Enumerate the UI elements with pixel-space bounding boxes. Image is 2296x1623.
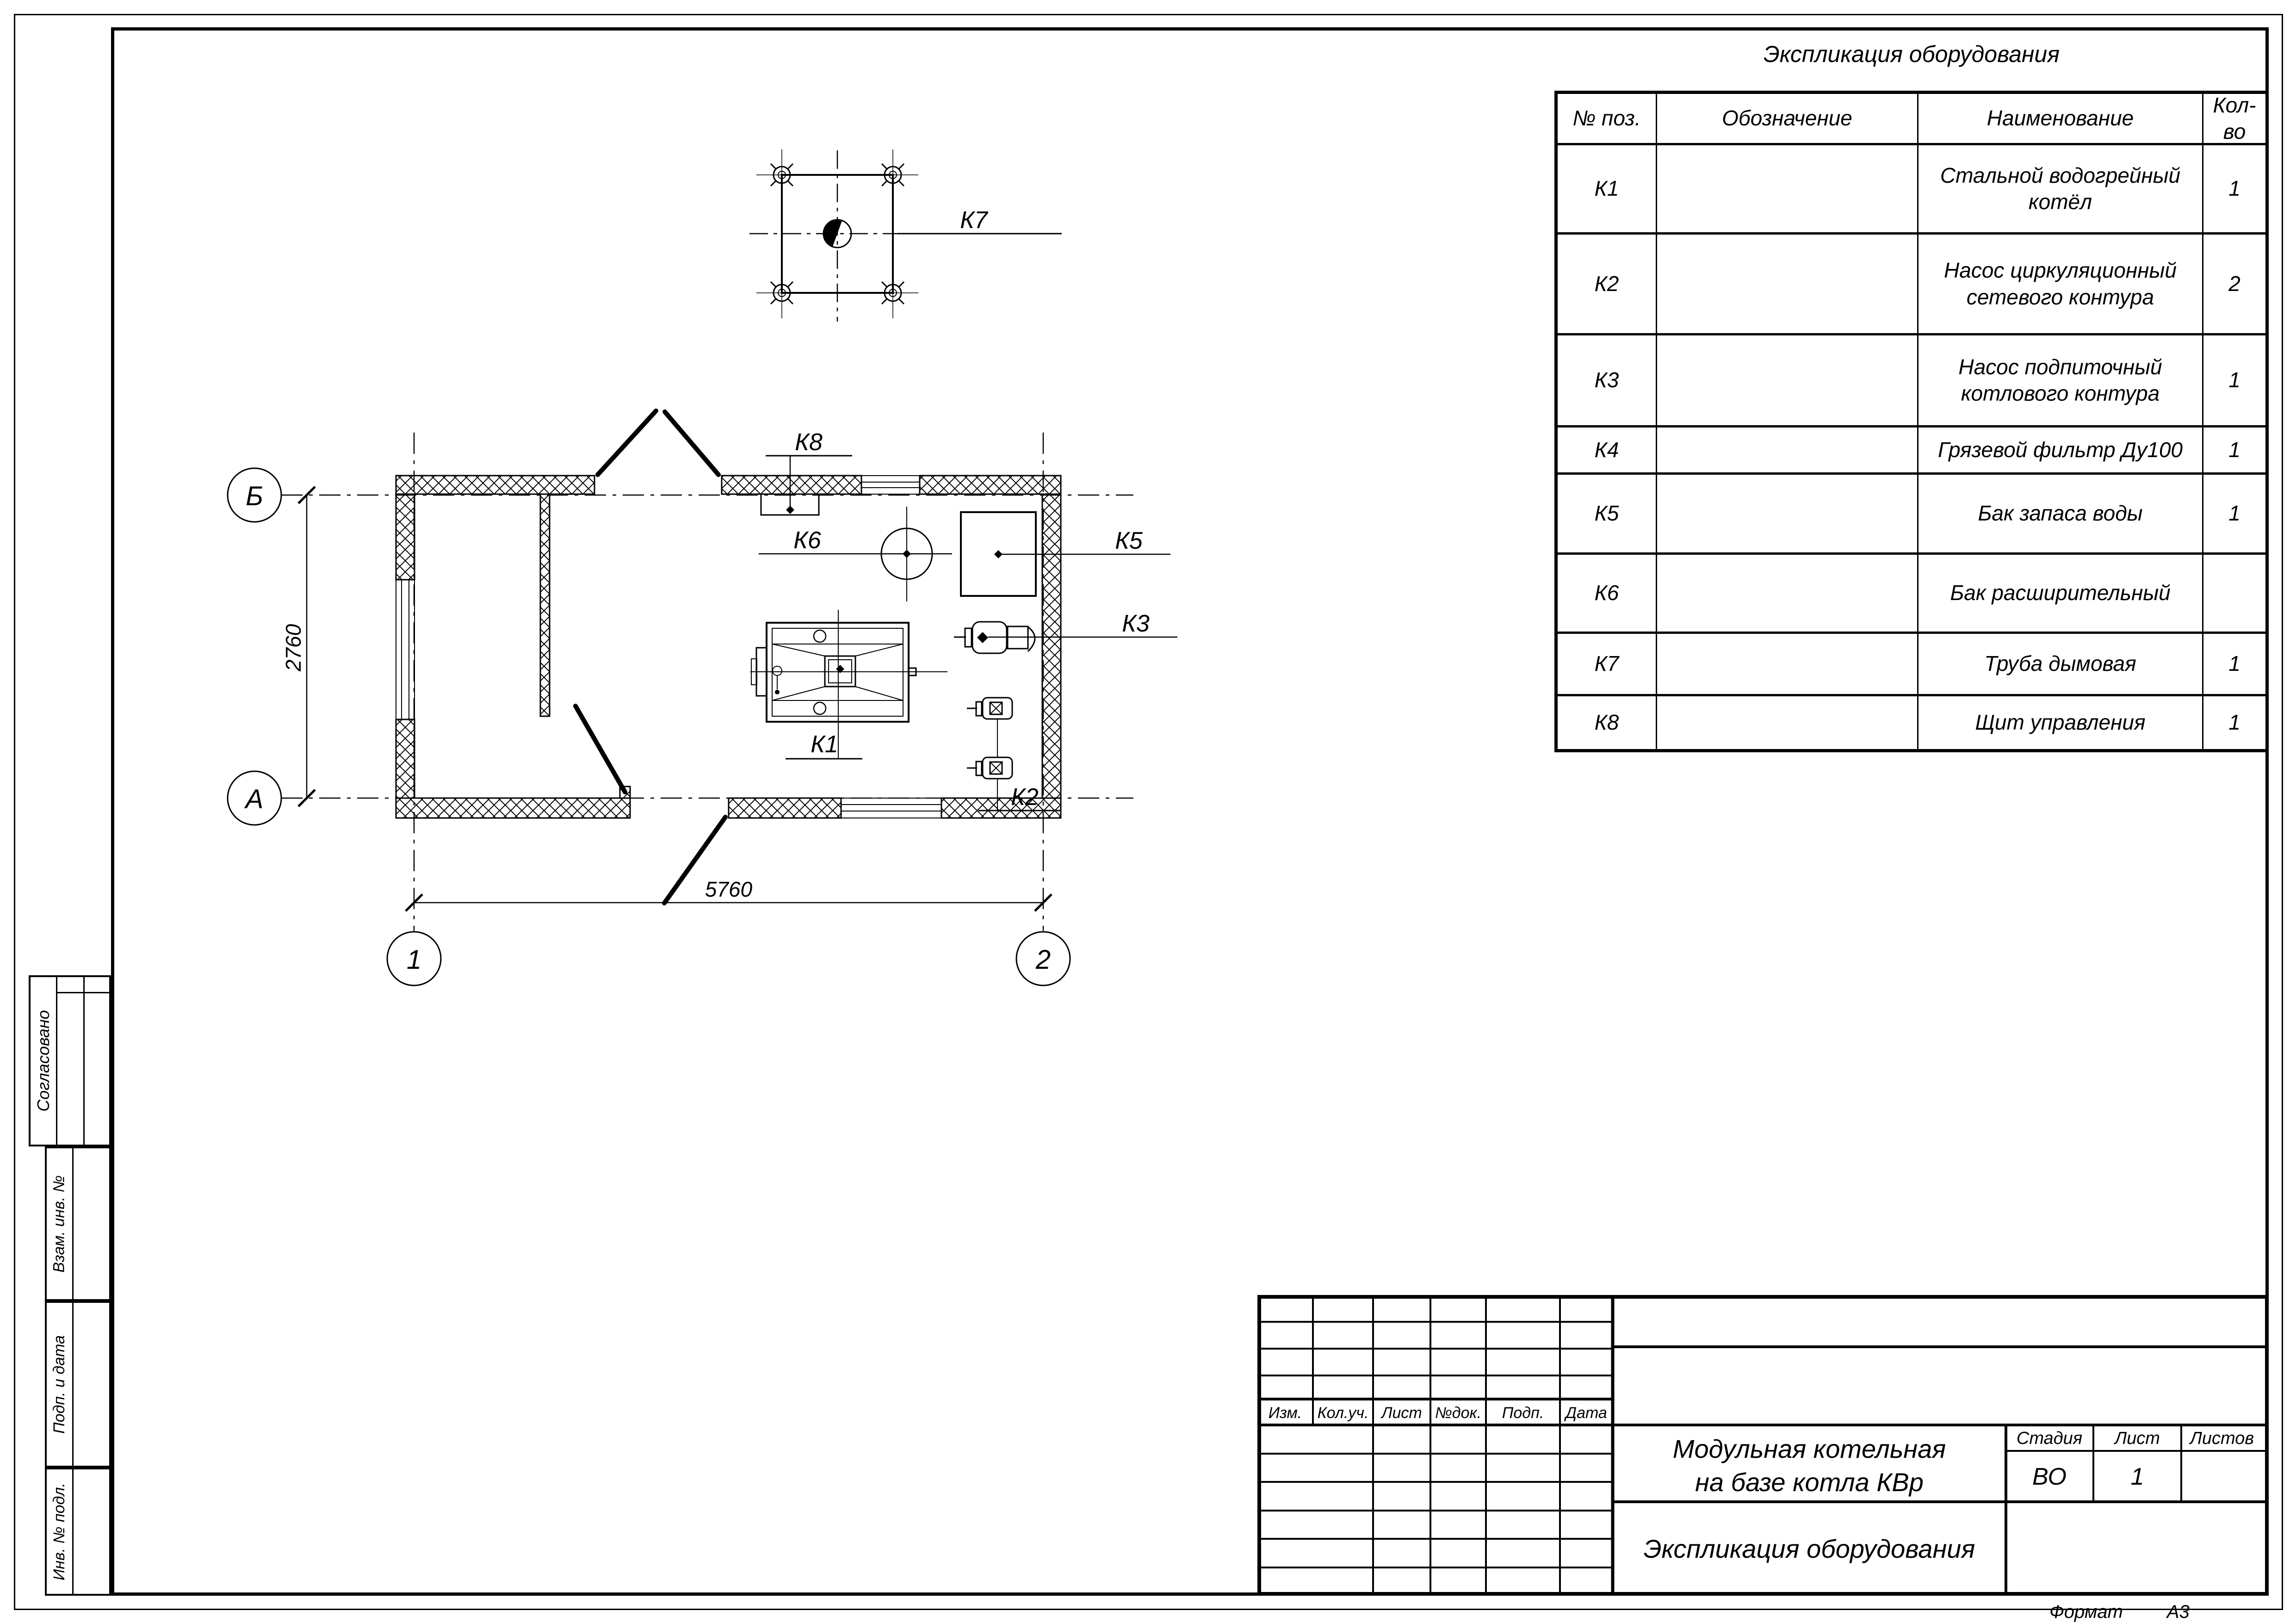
row-pos: К2 xyxy=(1558,235,1657,335)
col-header-qty: Кол-во xyxy=(2203,94,2265,145)
stamp-replace-inv: Взам. инв. № xyxy=(45,1146,111,1301)
col-header-pos: № поз. xyxy=(1558,94,1657,145)
row-name: Стальной водогрейный котёл xyxy=(1918,145,2203,235)
rev-col-data: Дата xyxy=(1564,1404,1607,1422)
row-qty: 1 xyxy=(2203,634,2265,696)
row-qty: 2 xyxy=(2203,235,2265,335)
sheet-value: 1 xyxy=(2131,1463,2144,1490)
row-name: Бак расширительный xyxy=(1918,555,2203,634)
sheets-label: Листов xyxy=(2189,1429,2254,1448)
row-pos: К4 xyxy=(1558,427,1657,475)
row-designation xyxy=(1657,427,1918,475)
row-qty xyxy=(2203,555,2265,634)
row-name: Насос циркуляционный сетевого контура xyxy=(1918,235,2203,335)
row-designation xyxy=(1657,475,1918,555)
format-note: Формат А3 xyxy=(2049,1602,2190,1623)
row-pos: К1 xyxy=(1558,145,1657,235)
stamp-inv-original: Инв. № подл. xyxy=(45,1468,111,1596)
rev-col-podp: Подп. xyxy=(1502,1404,1544,1422)
row-designation xyxy=(1657,634,1918,696)
spec-table: № поз. Обозначение Наименование Кол-во К… xyxy=(1554,91,2269,752)
row-designation xyxy=(1657,555,1918,634)
spec-table-title: Экспликация оборудования xyxy=(1554,41,2269,68)
stamp-approved-label: Согласовано xyxy=(34,1010,53,1112)
sheet-label: Лист xyxy=(2113,1429,2160,1448)
row-qty: 1 xyxy=(2203,696,2265,749)
row-qty: 1 xyxy=(2203,335,2265,427)
row-designation xyxy=(1657,145,1918,235)
row-qty: 1 xyxy=(2203,427,2265,475)
row-designation xyxy=(1657,696,1918,749)
stage-label: Стадия xyxy=(2017,1429,2082,1448)
row-designation xyxy=(1657,335,1918,427)
stamp-approved: Согласовано xyxy=(29,975,111,1146)
row-pos: К5 xyxy=(1558,475,1657,555)
row-name: Бак запаса воды xyxy=(1918,475,2203,555)
format-value: А3 xyxy=(2167,1602,2190,1623)
row-name: Грязевой фильтр Ду100 xyxy=(1918,427,2203,475)
row-pos: К7 xyxy=(1558,634,1657,696)
project-name-line1: Модульная котельная xyxy=(1673,1434,1946,1463)
stamp-replace-inv-label: Взам. инв. № xyxy=(50,1175,68,1272)
drawing-sheet: К7 Б А 1 2 2760 5760 xyxy=(0,0,2296,1623)
rev-col-list: Лист xyxy=(1380,1404,1422,1422)
row-name: Труба дымовая xyxy=(1918,634,2203,696)
document-name: Экспликация оборудования xyxy=(1644,1534,1975,1563)
row-pos: К8 xyxy=(1558,696,1657,749)
stamp-sign-date-label: Подп. и дата xyxy=(50,1335,68,1434)
rev-col-ndok: №док. xyxy=(1435,1404,1481,1422)
row-pos: К3 xyxy=(1558,335,1657,427)
title-block: Изм. Кол.уч. Лист №док. Подп. Дата Модул… xyxy=(1257,1295,2269,1596)
row-name: Щит управления xyxy=(1918,696,2203,749)
stamp-sign-date: Подп. и дата xyxy=(45,1301,111,1468)
col-header-designation: Обозначение xyxy=(1657,94,1918,145)
rev-col-izm: Изм. xyxy=(1269,1404,1302,1422)
row-qty: 1 xyxy=(2203,475,2265,555)
stamp-inv-original-label: Инв. № подл. xyxy=(50,1483,68,1580)
row-pos: К6 xyxy=(1558,555,1657,634)
row-qty: 1 xyxy=(2203,145,2265,235)
stage-value: ВО xyxy=(2032,1463,2067,1490)
rev-col-koluch: Кол.уч. xyxy=(1318,1404,1369,1422)
row-name: Насос подпиточный котлового контура xyxy=(1918,335,2203,427)
row-designation xyxy=(1657,235,1918,335)
format-label: Формат xyxy=(2049,1602,2123,1623)
project-name-line2: на базе котла КВр xyxy=(1695,1468,1924,1497)
col-header-name: Наименование xyxy=(1918,94,2203,145)
